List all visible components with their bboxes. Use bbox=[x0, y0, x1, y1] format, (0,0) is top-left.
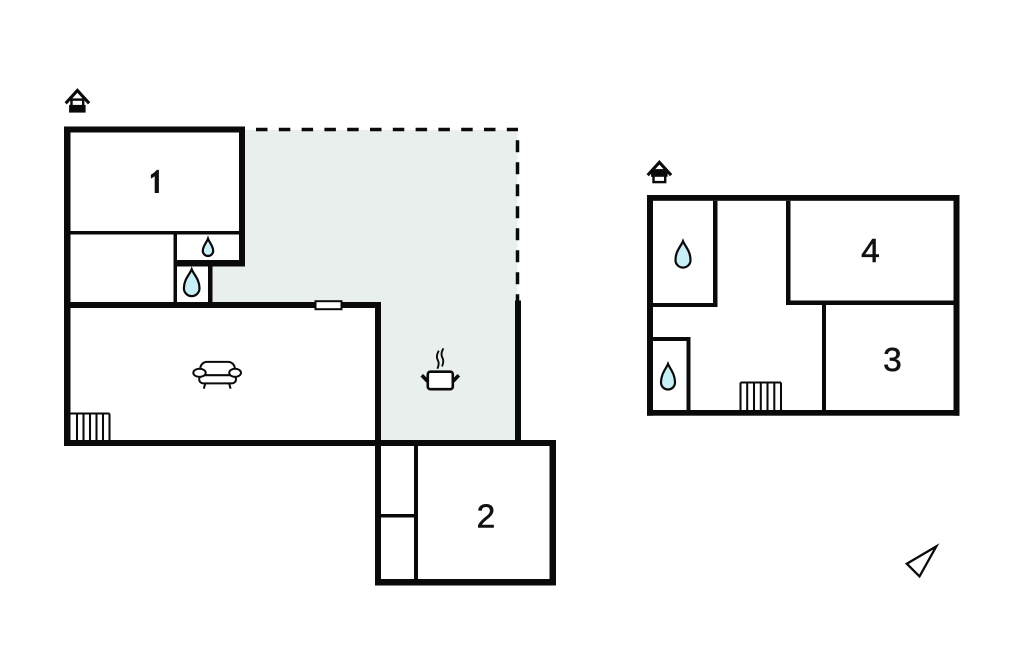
svg-text:3: 3 bbox=[883, 342, 902, 379]
svg-text:4: 4 bbox=[861, 233, 880, 270]
svg-text:2: 2 bbox=[477, 499, 496, 536]
